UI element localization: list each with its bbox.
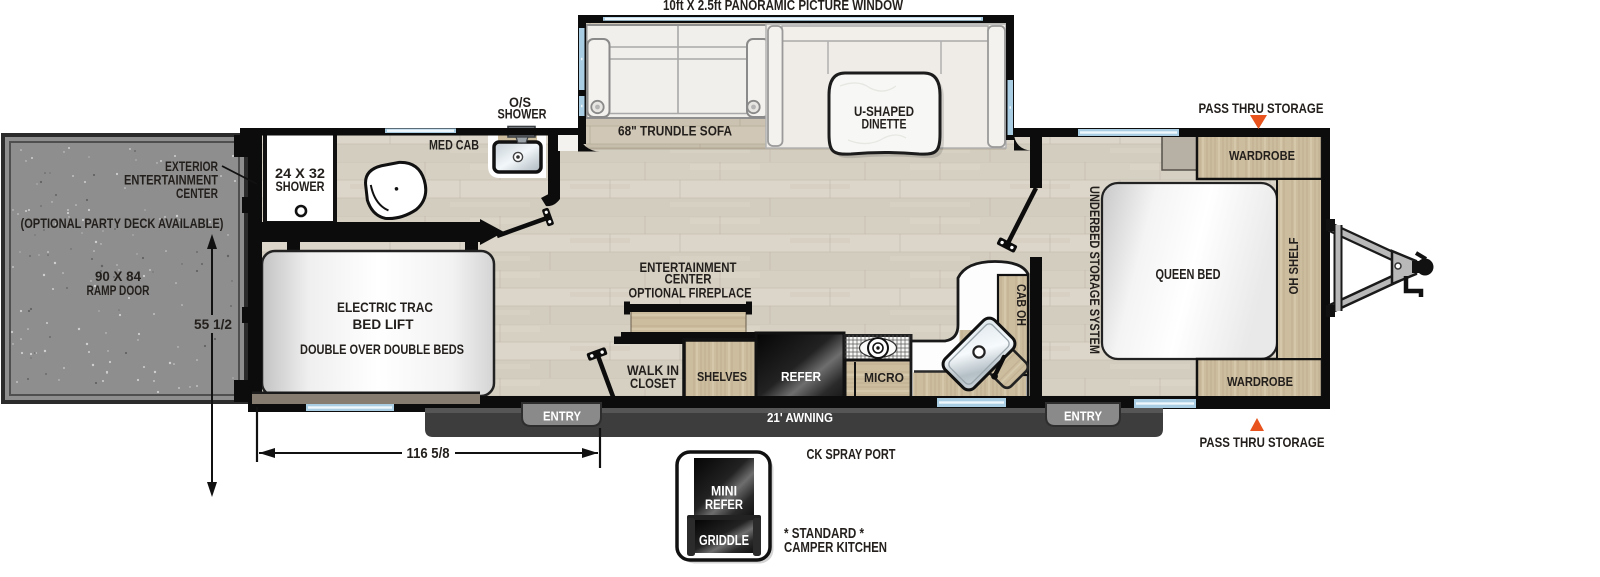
svg-text:DOUBLE OVER DOUBLE BEDS: DOUBLE OVER DOUBLE BEDS xyxy=(300,341,464,357)
svg-text:ENTRY: ENTRY xyxy=(543,409,581,424)
svg-text:CAMPER KITCHEN: CAMPER KITCHEN xyxy=(784,539,887,556)
svg-text:90 X 84: 90 X 84 xyxy=(95,269,141,284)
svg-text:SHOWER: SHOWER xyxy=(498,106,547,122)
svg-text:SHOWER: SHOWER xyxy=(276,178,325,194)
svg-text:WARDROBE: WARDROBE xyxy=(1229,148,1295,163)
svg-text:UNDERBED STORAGE SYSTEM: UNDERBED STORAGE SYSTEM xyxy=(1087,186,1103,354)
svg-text:REFER: REFER xyxy=(705,497,743,512)
svg-text:PASS THRU STORAGE: PASS THRU STORAGE xyxy=(1199,100,1324,116)
svg-text:GRIDDLE: GRIDDLE xyxy=(699,533,749,549)
svg-text:116 5/8: 116 5/8 xyxy=(407,445,450,462)
svg-text:CLOSET: CLOSET xyxy=(630,376,677,391)
svg-text:REFER: REFER xyxy=(781,369,822,384)
svg-text:RAMP DOOR: RAMP DOOR xyxy=(87,283,150,298)
svg-text:ELECTRIC TRAC: ELECTRIC TRAC xyxy=(337,299,433,315)
svg-text:QUEEN BED: QUEEN BED xyxy=(1156,266,1221,283)
svg-text:SHELVES: SHELVES xyxy=(697,369,747,384)
svg-text:DINETTE: DINETTE xyxy=(862,116,907,132)
svg-text:MED CAB: MED CAB xyxy=(429,138,479,153)
svg-text:CENTER: CENTER xyxy=(176,186,218,201)
svg-text:WARDROBE: WARDROBE xyxy=(1227,374,1293,389)
svg-text:ENTRY: ENTRY xyxy=(1064,409,1102,424)
svg-text:10ft X 2.5ft PANORAMIC PICTURE: 10ft X 2.5ft PANORAMIC PICTURE WINDOW xyxy=(663,0,903,14)
svg-text:CK SPRAY PORT: CK SPRAY PORT xyxy=(807,446,896,463)
svg-text:(OPTIONAL PARTY DECK AVAILABLE: (OPTIONAL PARTY DECK AVAILABLE) xyxy=(21,215,224,231)
svg-text:55 1/2: 55 1/2 xyxy=(194,316,232,332)
svg-text:21' AWNING: 21' AWNING xyxy=(767,411,833,425)
svg-text:PASS THRU STORAGE: PASS THRU STORAGE xyxy=(1200,434,1325,450)
svg-text:CAB OH: CAB OH xyxy=(1014,284,1028,326)
svg-text:MICRO: MICRO xyxy=(864,370,904,385)
svg-text:OH SHELF: OH SHELF xyxy=(1287,237,1301,294)
svg-text:OPTIONAL FIREPLACE: OPTIONAL FIREPLACE xyxy=(629,285,752,301)
svg-text:BED LIFT: BED LIFT xyxy=(353,316,414,332)
svg-text:68" TRUNDLE SOFA: 68" TRUNDLE SOFA xyxy=(618,124,732,139)
